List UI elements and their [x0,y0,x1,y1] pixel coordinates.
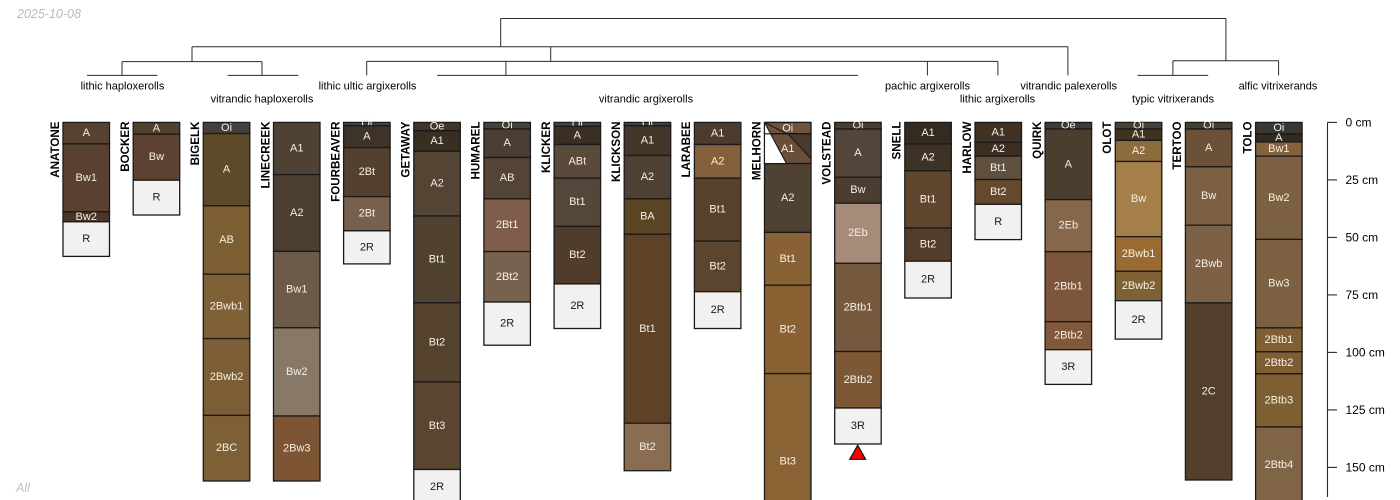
svg-text:A: A [1065,158,1073,170]
svg-text:2Btb1: 2Btb1 [844,301,873,313]
svg-text:MELHORN: MELHORN [750,122,763,181]
svg-text:2Bt: 2Bt [359,208,376,220]
svg-text:VOLSTEAD: VOLSTEAD [821,122,834,185]
svg-text:AB: AB [219,234,234,246]
svg-text:A: A [83,127,91,139]
svg-text:Bt3: Bt3 [779,455,796,467]
svg-text:Bt1: Bt1 [990,162,1007,174]
svg-text:2Bw3: 2Bw3 [283,443,311,455]
svg-text:2R: 2R [500,318,514,330]
svg-text:A: A [363,131,371,143]
svg-text:A2: A2 [711,155,724,167]
svg-text:Bt2: Bt2 [639,441,656,453]
svg-text:Oi: Oi [782,122,793,134]
svg-text:150 cm: 150 cm [1346,461,1385,475]
svg-text:HUMAREL: HUMAREL [470,122,483,180]
svg-text:FOURBEAVER: FOURBEAVER [329,121,342,202]
svg-text:Bt2: Bt2 [709,260,726,272]
svg-text:All: All [15,481,31,495]
svg-text:2R: 2R [360,241,374,253]
svg-text:2Btb1: 2Btb1 [1054,281,1083,293]
svg-text:125 cm: 125 cm [1346,403,1385,417]
svg-text:Bt1: Bt1 [779,253,796,265]
svg-text:Bt2: Bt2 [569,249,586,261]
svg-text:KLICKSON: KLICKSON [610,122,623,183]
svg-text:2Bwb1: 2Bwb1 [210,300,244,312]
svg-text:Bt1: Bt1 [569,196,586,208]
svg-text:A2: A2 [1132,145,1145,157]
svg-text:A2: A2 [992,143,1005,155]
svg-text:HARLOW: HARLOW [961,121,974,173]
svg-text:vitrandic palexerolls: vitrandic palexerolls [1020,80,1117,92]
svg-text:pachic argixerolls: pachic argixerolls [885,80,970,92]
svg-text:A1: A1 [641,135,654,147]
svg-text:Bw3: Bw3 [1268,278,1289,290]
svg-text:QUIRK: QUIRK [1031,121,1044,159]
svg-text:Bt1: Bt1 [709,204,726,216]
svg-text:2Bwb2: 2Bwb2 [210,371,244,383]
svg-text:SNELL: SNELL [891,122,904,160]
svg-text:2R: 2R [570,300,584,312]
svg-text:TOLO: TOLO [1241,122,1254,154]
svg-text:2Bwb1: 2Bwb1 [1122,248,1156,260]
svg-text:2BC: 2BC [216,442,237,454]
svg-text:2Btb2: 2Btb2 [1054,330,1083,342]
svg-text:A1: A1 [430,135,443,147]
svg-text:A2: A2 [290,207,303,219]
svg-text:A1: A1 [1132,129,1145,141]
svg-text:BOCKER: BOCKER [119,121,132,172]
svg-text:A2: A2 [781,192,794,204]
svg-text:A1: A1 [781,143,794,155]
svg-text:Bt1: Bt1 [920,193,937,205]
svg-text:lithic haploxerolls: lithic haploxerolls [81,80,165,92]
svg-text:Bw2: Bw2 [76,211,97,223]
svg-text:A: A [574,129,582,141]
svg-text:lithic argixerolls: lithic argixerolls [960,94,1036,106]
svg-text:BA: BA [640,211,655,223]
svg-text:Oi: Oi [221,122,232,134]
svg-text:Bw1: Bw1 [286,284,307,296]
svg-text:OLOT: OLOT [1101,122,1114,154]
svg-text:2025-10-08: 2025-10-08 [16,7,81,21]
svg-text:R: R [994,216,1002,228]
svg-text:Bt2: Bt2 [920,239,937,251]
svg-text:Bw: Bw [1201,190,1216,202]
svg-text:A2: A2 [921,151,934,163]
svg-text:A1: A1 [992,126,1005,138]
svg-text:Bw: Bw [1131,193,1146,205]
svg-text:ABt: ABt [568,155,586,167]
svg-text:AB: AB [500,172,515,184]
svg-text:2Eb: 2Eb [1059,220,1079,232]
svg-text:Bw1: Bw1 [1268,143,1289,155]
svg-text:2Bwb2: 2Bwb2 [1122,280,1156,292]
svg-text:BIGELK: BIGELK [189,121,202,165]
svg-text:Bt2: Bt2 [429,336,446,348]
svg-text:2R: 2R [921,274,935,286]
svg-text:Bw: Bw [149,151,164,163]
svg-text:3R: 3R [851,420,865,432]
svg-text:A1: A1 [921,127,934,139]
svg-text:A1: A1 [711,127,724,139]
svg-text:TERTOO: TERTOO [1171,122,1184,170]
svg-text:2Btb4: 2Btb4 [1264,459,1293,471]
svg-text:0 cm: 0 cm [1346,116,1372,130]
svg-text:2R: 2R [430,481,444,493]
svg-text:LINECREEK: LINECREEK [259,121,272,189]
svg-text:2Btb3: 2Btb3 [1264,394,1293,406]
svg-text:Bw1: Bw1 [76,172,97,184]
svg-text:2R: 2R [711,304,725,316]
svg-text:2Btb2: 2Btb2 [844,374,873,386]
svg-text:25 cm: 25 cm [1346,173,1379,187]
svg-text:lithic ultic argixerolls: lithic ultic argixerolls [319,80,417,92]
svg-text:Bt1: Bt1 [639,323,656,335]
svg-text:2R: 2R [1132,314,1146,326]
svg-text:R: R [82,233,90,245]
svg-text:Bw2: Bw2 [1268,192,1289,204]
svg-text:Bt2: Bt2 [990,186,1007,198]
svg-text:Bt3: Bt3 [429,420,446,432]
svg-text:50 cm: 50 cm [1346,231,1379,245]
svg-text:Bt2: Bt2 [779,323,796,335]
svg-text:A: A [223,164,231,176]
svg-text:KLICKER: KLICKER [540,121,553,173]
svg-text:R: R [152,192,160,204]
svg-text:2Bwb: 2Bwb [1195,258,1223,270]
svg-text:A: A [503,137,511,149]
svg-text:3R: 3R [1061,361,1075,373]
svg-text:2Btb1: 2Btb1 [1264,334,1293,346]
svg-text:vitrandic argixerolls: vitrandic argixerolls [599,94,694,106]
svg-text:alfic vitrixerands: alfic vitrixerands [1239,80,1318,92]
svg-text:A: A [153,122,161,134]
svg-text:2Bt2: 2Bt2 [496,271,519,283]
svg-text:2C: 2C [1202,385,1216,397]
svg-text:A1: A1 [290,143,303,155]
svg-text:100 cm: 100 cm [1346,346,1385,360]
svg-text:Bt1: Bt1 [429,253,446,265]
svg-text:2Bt1: 2Bt1 [496,219,519,231]
svg-text:2Btb2: 2Btb2 [1264,357,1293,369]
svg-text:A2: A2 [430,178,443,190]
svg-text:75 cm: 75 cm [1346,288,1379,302]
svg-text:A: A [1205,142,1213,154]
svg-text:Bw2: Bw2 [286,366,307,378]
svg-text:vitrandic haploxerolls: vitrandic haploxerolls [211,94,314,106]
svg-text:2Eb: 2Eb [848,227,868,239]
svg-text:A: A [854,147,862,159]
svg-text:typic vitrixerands: typic vitrixerands [1132,94,1214,106]
svg-text:GETAWAY: GETAWAY [400,121,413,177]
svg-text:Bw: Bw [850,184,865,196]
svg-text:2Bt: 2Bt [359,166,376,178]
svg-text:LARABEE: LARABEE [680,121,693,177]
svg-text:A2: A2 [641,171,654,183]
svg-text:ANATONE: ANATONE [49,121,62,178]
